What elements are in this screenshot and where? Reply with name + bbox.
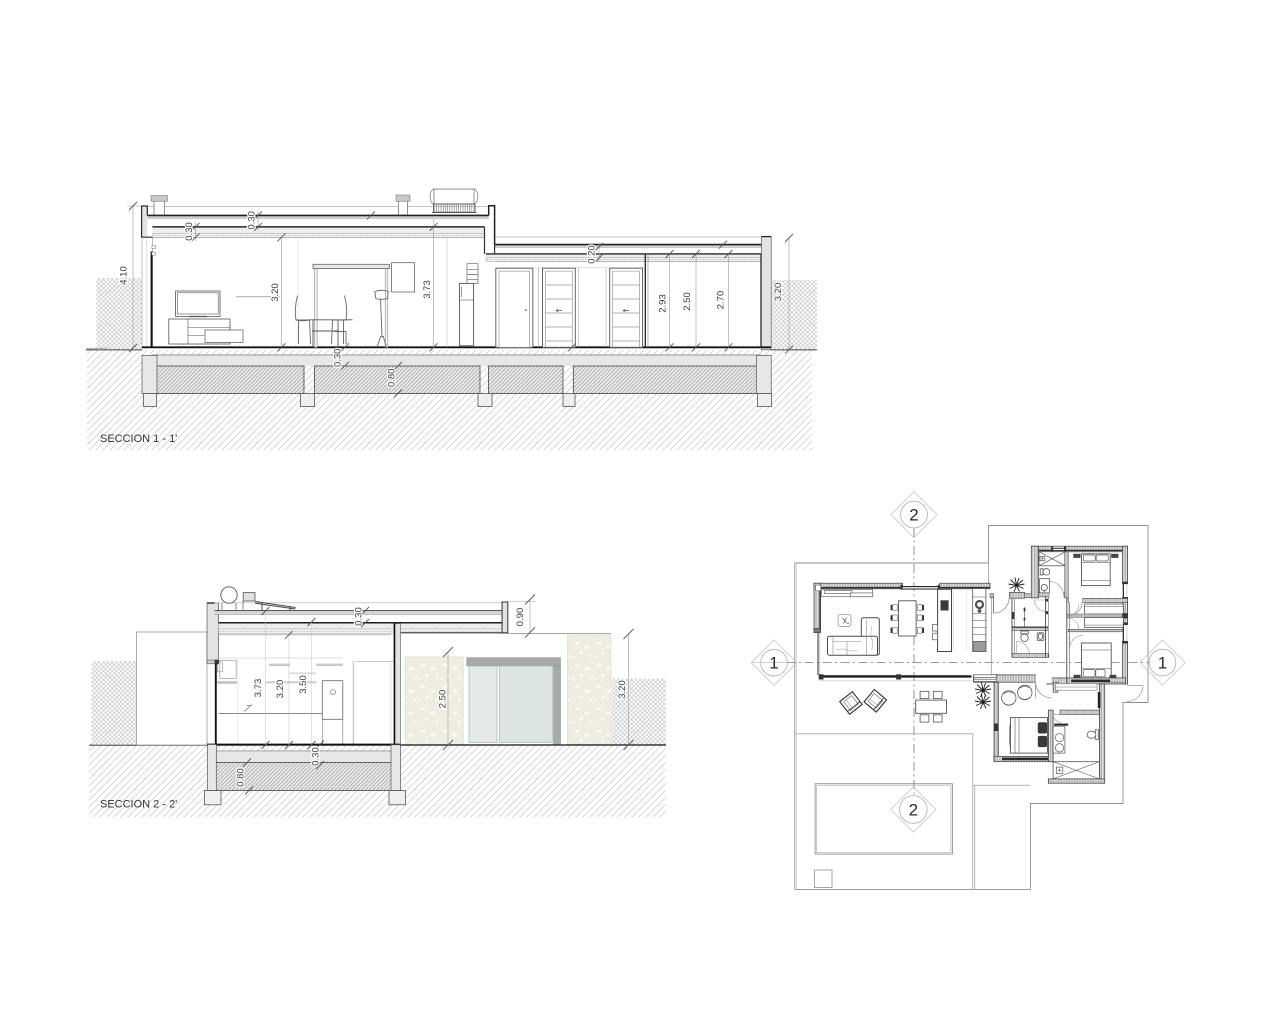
svg-text:0.30: 0.30 (353, 607, 364, 626)
svg-text:0.20: 0.20 (587, 245, 598, 264)
svg-text:3.20: 3.20 (275, 680, 286, 699)
svg-text:3.20: 3.20 (773, 283, 784, 302)
svg-text:4.10: 4.10 (118, 266, 129, 285)
svg-text:2.70: 2.70 (715, 291, 726, 310)
svg-text:SECCION 1 - 1': SECCION 1 - 1' (100, 433, 177, 445)
svg-text:3.50: 3.50 (298, 675, 309, 694)
svg-text:2.50: 2.50 (682, 292, 693, 311)
svg-text:2.50: 2.50 (437, 690, 448, 709)
svg-text:3.73: 3.73 (253, 679, 264, 698)
svg-text:2: 2 (909, 801, 918, 820)
svg-text:1: 1 (1158, 654, 1167, 673)
svg-text:0.30: 0.30 (246, 211, 257, 230)
svg-text:1: 1 (769, 654, 778, 673)
svg-text:0.30: 0.30 (310, 747, 321, 766)
svg-text:0.90: 0.90 (515, 608, 526, 627)
svg-text:3.73: 3.73 (422, 280, 433, 299)
svg-text:2: 2 (909, 506, 918, 525)
svg-text:3.20: 3.20 (270, 283, 281, 302)
svg-text:0.30: 0.30 (184, 222, 195, 241)
svg-text:0.80: 0.80 (386, 369, 397, 388)
svg-text:SECCION 2 - 2': SECCION 2 - 2' (100, 799, 177, 811)
svg-text:0.80: 0.80 (235, 768, 246, 787)
svg-text:0.30: 0.30 (332, 349, 343, 368)
svg-text:2.93: 2.93 (658, 294, 669, 313)
svg-text:3.20: 3.20 (617, 680, 628, 699)
